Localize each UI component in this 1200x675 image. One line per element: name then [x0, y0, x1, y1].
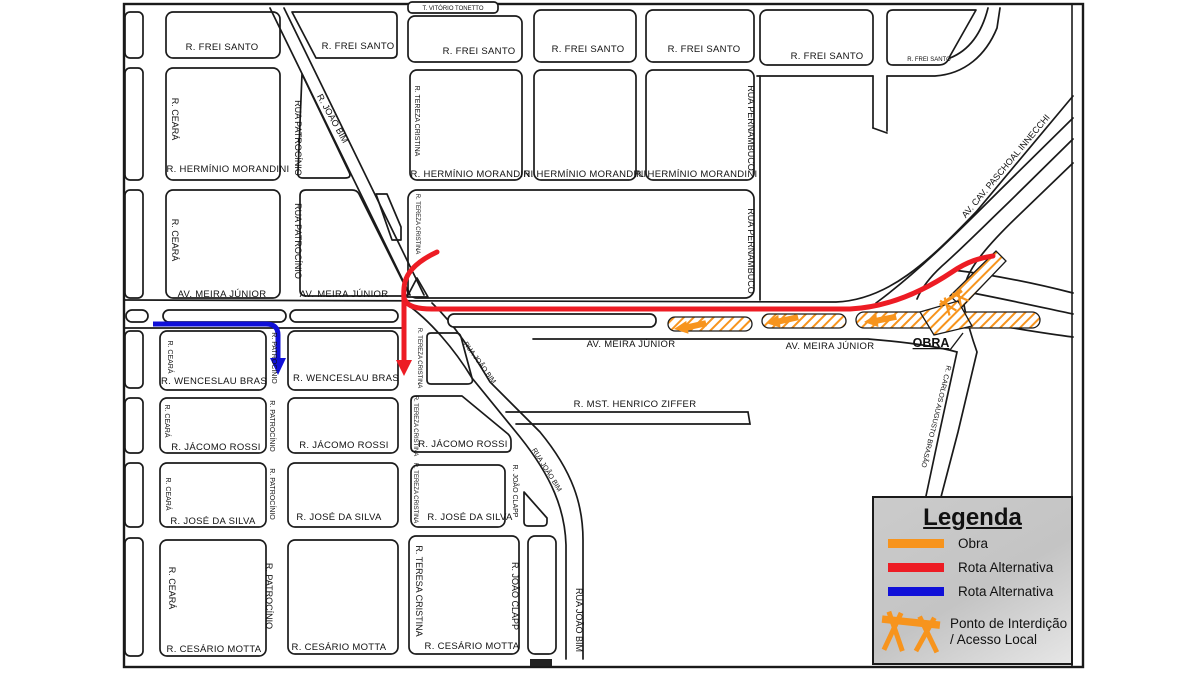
legend-item-label: Ponto de Interdição / Acesso Local — [950, 616, 1071, 648]
obra-label: OBRA — [913, 336, 950, 350]
street-label-ceara: R. CEARÁ — [170, 98, 180, 141]
legend-item-rota-red: Rota Alternativa — [888, 560, 1071, 575]
legend-item-label: Rota Alternativa — [958, 560, 1053, 575]
blue-route-swatch — [888, 587, 944, 596]
street-label-cesario-motta: R. CESÁRIO MOTTA — [425, 641, 520, 652]
legend-title: Legenda — [874, 504, 1071, 532]
street-label-pernambuco: RUA PERNAMBUCO — [746, 208, 756, 294]
street-label-cesario-motta: R. CESÁRIO MOTTA — [292, 642, 387, 653]
street-label-meira-junior: AV. MEIRA JÚNIOR — [786, 341, 875, 352]
street-label-vitorio-tonetto: T. VITÓRIO TONETTO — [422, 5, 483, 12]
legend-item-interdicao: Ponto de Interdição / Acesso Local — [880, 608, 1071, 656]
street-label-herminio-morandini: R. HERMÍNIO MORANDINI — [635, 169, 758, 180]
street-label-tereza-cristina: R. TEREZA CRISTINA — [412, 396, 418, 457]
street-label-rua-patrocinio: RUA PATROCÍNIO — [293, 203, 303, 279]
street-label-frei-santo: R. FREI SANTO — [322, 41, 395, 52]
street-label-wenceslau-bras: R. WENCESLAU BRAS — [161, 376, 267, 387]
street-label-herminio-morandini: R. HERMÍNIO MORANDINI — [167, 164, 290, 175]
street-label-ceara: R. CEARÁ — [163, 404, 172, 437]
legend-item-label: Obra — [958, 536, 988, 551]
street-label-patrocinio: R. PATROCÍNIO — [268, 468, 277, 520]
street-label-frei-santo: R. FREI SANTO — [791, 51, 864, 62]
street-label-meira-junior: AV. MEIRA JÚNIOR — [300, 289, 389, 300]
street-label-ceara: R. CEARÁ — [164, 477, 173, 510]
street-label-joao-clapp: R. JOÃO CLAPP — [511, 465, 520, 518]
map-page: OBRA T. VITÓRIO TONETTO R. FREI SANTO R.… — [0, 0, 1200, 675]
street-label-tereza-cristina: R. TEREZA CRISTINA — [414, 194, 420, 255]
street-label-frei-santo: R. FREI SANTO — [443, 46, 516, 57]
street-label-meira-junior: AV. MEIRA JÚNIOR — [178, 289, 267, 300]
street-label-jacomo-rossi: R. JÁCOMO ROSSI — [171, 442, 260, 453]
legend-panel: Legenda Obra Rota Alternativa Rota Alter… — [872, 496, 1073, 665]
street-label-pernambuco: RUA PERNAMBUCO — [746, 85, 756, 171]
street-label-herminio-morandini: R. HERMÍNIO MORANDINI — [411, 169, 534, 180]
street-label-frei-santo: R. FREI SANTO — [907, 57, 951, 63]
street-label-frei-santo: R. FREI SANTO — [552, 44, 625, 55]
street-label-frei-santo: R. FREI SANTO — [186, 42, 259, 53]
street-label-frei-santo: R. FREI SANTO — [668, 44, 741, 55]
street-label-patrocinio: R. PATROCÍNIO — [268, 400, 277, 452]
street-label-jacomo-rossi: R. JÁCOMO ROSSI — [299, 440, 388, 451]
street-label-wenceslau-bras: R. WENCESLAU BRAS — [293, 373, 399, 384]
street-label-joao-clapp: R. JOÃO CLAPP — [510, 562, 520, 630]
street-label-ceara: R. CEARÁ — [166, 340, 175, 373]
legend-item-obra: Obra — [888, 536, 1071, 551]
street-label-patrocinio: R. PATROCÍNIO — [264, 563, 274, 629]
barrier-icon — [880, 608, 942, 656]
street-label-patrocinio: R. PATROCÍNIO — [270, 332, 279, 384]
street-label-henrico-ziffer: R. MST. HENRICO ZIFFER — [574, 399, 697, 410]
street-label-tereza-cristina: R. TEREZA CRISTINA — [416, 328, 422, 389]
street-label-herminio-morandini: R. HERMÍNIO MORANDINI — [524, 169, 647, 180]
street-label-teresa-cristina: R. TERESA CRISTINA — [414, 545, 424, 636]
obra-swatch — [888, 539, 944, 548]
street-label-tereza-cristina: R. TEREZA CRISTINA — [413, 86, 420, 157]
street-label-jose-da-silva: R. JOSÉ DA SILVA — [170, 516, 256, 527]
street-label-jose-da-silva: R. JOSÉ DA SILVA — [296, 512, 382, 523]
street-label-jacomo-rossi: R. JÁCOMO ROSSI — [418, 439, 507, 450]
street-label-rua-joao-bim: RUA JOÃO BIM — [574, 588, 584, 652]
legend-item-rota-blue: Rota Alternativa — [888, 584, 1071, 599]
street-label-cesario-motta: R. CESÁRIO MOTTA — [167, 644, 262, 655]
street-label-jose-da-silva: R. JOSÉ DA SILVA — [427, 512, 513, 523]
red-route-swatch — [888, 563, 944, 572]
street-label-ceara: R. CEARÁ — [170, 219, 180, 262]
street-label-tereza-cristina: R. TEREZA CRISTINA — [412, 463, 418, 524]
street-label-ceara: R. CEARÁ — [167, 567, 177, 610]
street-label-rua-patrocinio: RUA PATROCÍNIO — [293, 100, 303, 176]
legend-item-label: Rota Alternativa — [958, 584, 1053, 599]
street-label-meira-junior: AV. MEIRA JÚNIOR — [587, 339, 676, 350]
